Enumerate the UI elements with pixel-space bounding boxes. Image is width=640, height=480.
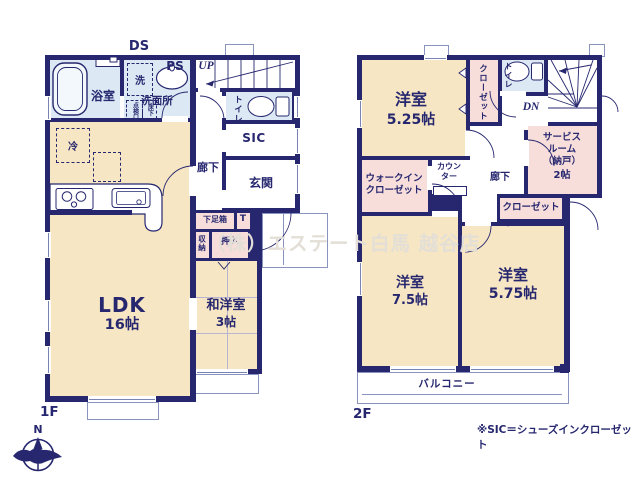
washitsu-name-label: 和洋室	[206, 299, 245, 313]
service-room-label-4: 2帖	[554, 170, 571, 181]
ds-label: DS	[129, 40, 149, 54]
counter-label-1: カウン	[437, 163, 461, 172]
wic-label-1: ウォークイン	[365, 174, 422, 184]
service-room-label-2: ルーム	[548, 145, 576, 155]
room75-name-label: 洋室	[396, 276, 424, 291]
compass-north-label: N	[33, 424, 42, 436]
room575-size-label: 5.75帖	[489, 287, 538, 302]
storage-label: 収納	[198, 235, 206, 252]
toilet-icon-1f	[248, 97, 289, 117]
closet-upper-label: クローゼット	[478, 64, 487, 121]
washroom-label: 洗面所	[141, 96, 173, 108]
room525-name-label: 洋室	[395, 91, 427, 109]
entrance-label: 玄関	[249, 177, 273, 190]
counter-label-2: ター	[441, 173, 457, 182]
hall-2f-label: 廊下	[490, 172, 510, 183]
dn-label: DN	[523, 101, 540, 114]
ps-label: PS	[166, 60, 183, 73]
t-label: T	[240, 215, 246, 225]
toilet-2f-label: トイレ	[504, 62, 512, 89]
shoebox-label: 下足箱	[203, 216, 227, 225]
hall-1f-label: 廊下	[197, 162, 219, 174]
floor1-label: 1F	[40, 404, 59, 420]
up-label: UP	[198, 60, 213, 73]
service-room-label-1: サービス	[543, 133, 581, 143]
sic-footnote: ※SIC＝シューズインクローゼット	[477, 422, 640, 452]
room525-size-label: 5.25帖	[387, 113, 436, 128]
closet-lower-label: クローゼット	[502, 203, 559, 213]
toilet-1f-label: トイレ	[233, 95, 242, 124]
bath-label: 浴室	[91, 90, 115, 103]
bath-shelf-icon	[96, 57, 120, 67]
wic-label-2: クローゼット	[365, 186, 422, 196]
room575-name-label: 洋室	[498, 267, 528, 284]
washitsu-size-label: 3帖	[216, 316, 236, 329]
floor-plan-canvas: 洗 点検口 床下 冷	[0, 0, 640, 480]
room75-size-label: 7.5帖	[392, 294, 428, 308]
stairs-down-lines	[548, 60, 597, 108]
stairs-up-lines	[206, 60, 293, 88]
ldk-size-label: 16帖	[105, 318, 140, 334]
watermark: （株）エステート白馬 越谷店	[206, 227, 480, 256]
kitchen-sink-icon	[112, 189, 150, 208]
stove-icon	[56, 189, 93, 210]
balcony-label: バルコニー	[418, 379, 475, 391]
ldk-name-label: LDK	[98, 294, 146, 316]
service-room-label-3: （納戸）	[543, 157, 581, 167]
floor2-label: 2F	[353, 406, 372, 422]
bathtub-icon	[53, 63, 87, 115]
sic-label: SIC	[242, 132, 265, 145]
compass-icon	[13, 437, 62, 471]
